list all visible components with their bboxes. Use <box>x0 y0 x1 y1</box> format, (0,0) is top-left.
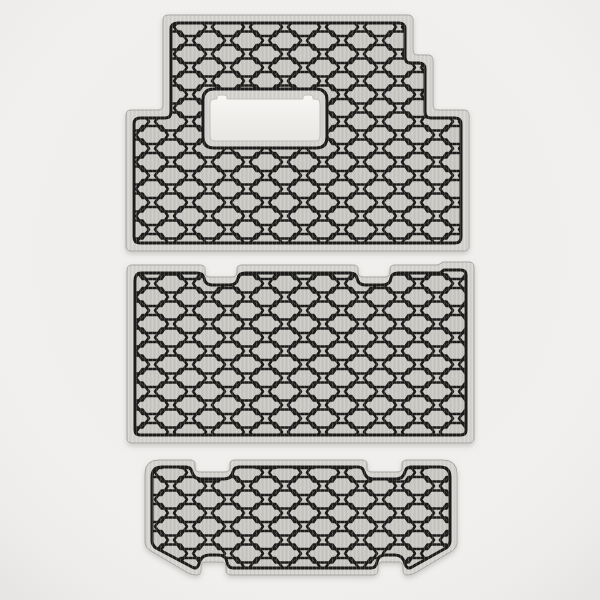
mat-brushed-texture <box>127 262 474 443</box>
pass-through-cutout <box>210 95 320 141</box>
middle-cargo-mat <box>127 262 474 443</box>
product-image-stage <box>0 0 600 600</box>
mat-brushed-texture <box>145 460 457 575</box>
lower-cargo-mat <box>145 460 457 575</box>
cargo-mat-set-render <box>0 0 600 600</box>
